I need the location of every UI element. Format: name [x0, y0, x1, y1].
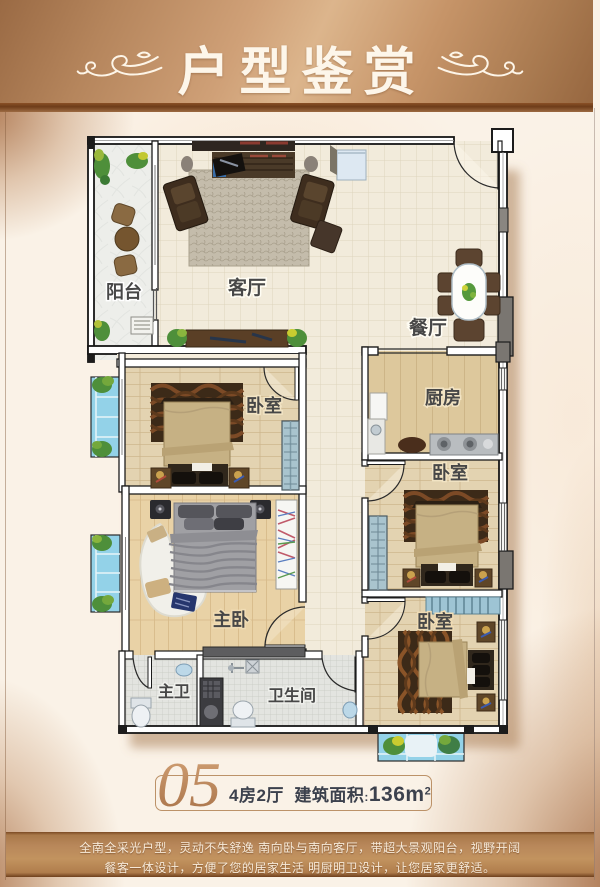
svg-text:卧室: 卧室	[417, 611, 453, 632]
svg-text:主卫: 主卫	[158, 682, 190, 701]
svg-text:餐厅: 餐厅	[409, 316, 447, 339]
svg-text:卧室: 卧室	[246, 395, 282, 416]
svg-text:客厅: 客厅	[228, 276, 266, 299]
svg-text:厨房: 厨房	[425, 387, 461, 408]
svg-text:阳台: 阳台	[106, 281, 142, 302]
svg-text:卫生间: 卫生间	[268, 686, 316, 705]
svg-text:卧室: 卧室	[432, 462, 468, 483]
svg-text:主卧: 主卧	[213, 609, 249, 630]
